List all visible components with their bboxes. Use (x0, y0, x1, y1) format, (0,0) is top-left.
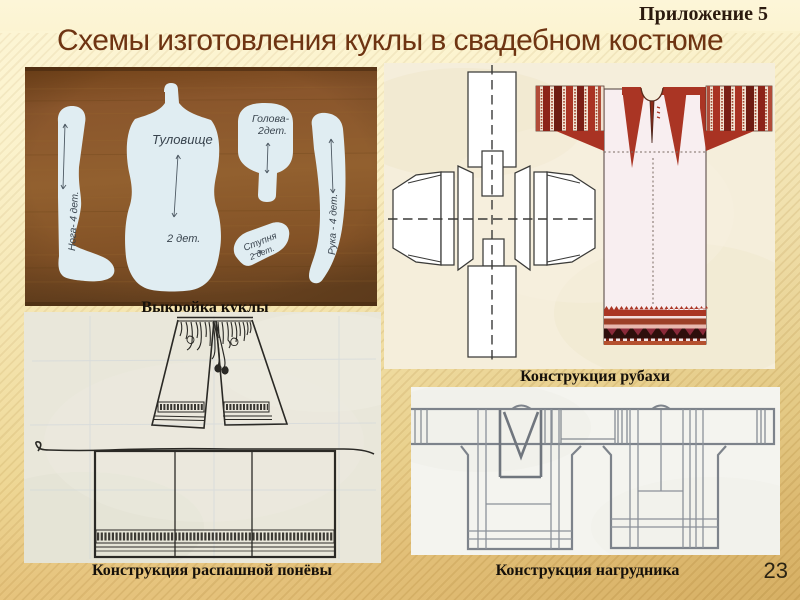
svg-text:2дет.: 2дет. (257, 125, 287, 137)
svg-text:Голова-: Голова- (252, 113, 290, 125)
svg-text:Туловище: Туловище (152, 132, 213, 147)
svg-text:Рука - 4 дет.: Рука - 4 дет. (327, 194, 340, 256)
svg-text:2 дет.: 2 дет. (166, 233, 200, 245)
